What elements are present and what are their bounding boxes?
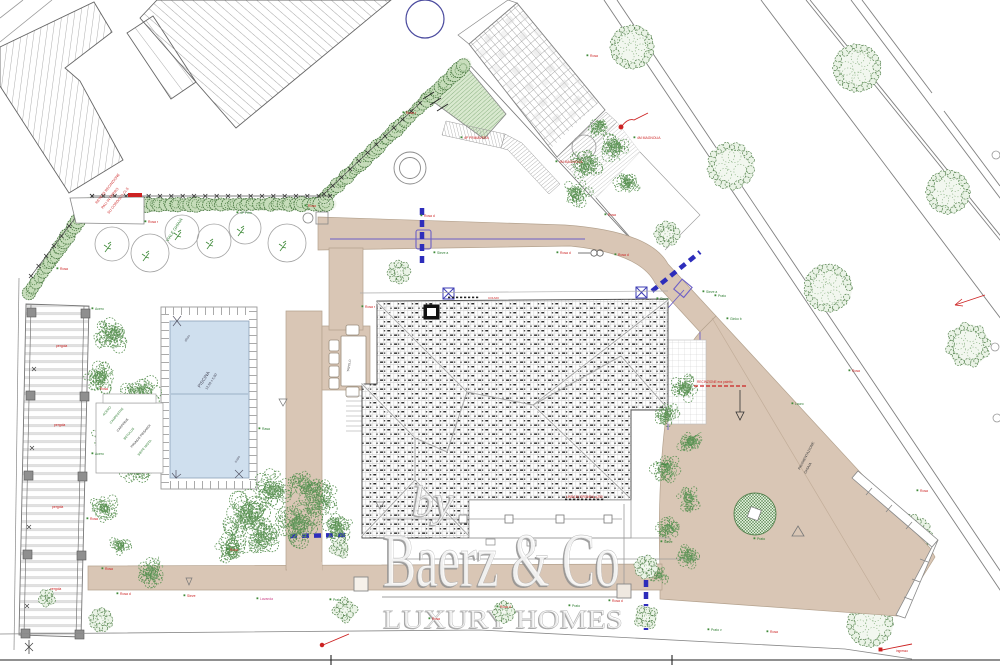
svg-text:Rosa: Rosa [230, 548, 238, 552]
svg-text:Lavanda: Lavanda [260, 597, 273, 601]
svg-text:Rosa r: Rosa r [406, 111, 417, 115]
svg-text:Prato v: Prato v [711, 628, 722, 632]
svg-text:Rosa: Rosa [590, 54, 598, 58]
svg-text:Rosa d: Rosa d [612, 599, 623, 603]
svg-text:Rosa: Rosa [308, 204, 316, 208]
svg-text:Sieve: Sieve [660, 462, 669, 466]
svg-text:4M MAGNOLIA: 4M MAGNOLIA [637, 136, 661, 140]
svg-text:pergola: pergola [50, 587, 61, 591]
svg-text:Rosa: Rosa [920, 489, 928, 493]
svg-text:Acero: Acero [95, 307, 104, 311]
svg-text:RECINZIONE era paletto: RECINZIONE era paletto [697, 380, 733, 384]
svg-text:Baerz & Co: Baerz & Co [383, 519, 620, 603]
svg-text:Rosa: Rosa [105, 567, 113, 571]
svg-text:Rosa r: Rosa r [365, 305, 376, 309]
svg-text:Rosa d: Rosa d [500, 605, 511, 609]
svg-text:Rosa: Rosa [852, 369, 860, 373]
svg-text:Rosa: Rosa [90, 517, 98, 521]
svg-text:pergola: pergola [54, 423, 65, 427]
svg-text:Prato: Prato [333, 598, 341, 602]
svg-text:pergola: pergola [56, 344, 67, 348]
svg-text:Rasa: Rasa [262, 427, 270, 431]
svg-text:Prato: Prato [718, 294, 726, 298]
svg-text:Rosa: Rosa [100, 387, 108, 391]
svg-text:Prato: Prato [572, 604, 580, 608]
svg-text:Rosa d: Rosa d [424, 214, 435, 218]
svg-text:4M MAGNOLIA: 4M MAGNOLIA [559, 160, 583, 164]
svg-text:Ginko b: Ginko b [730, 317, 742, 321]
svg-text:Acero: Acero [95, 452, 104, 456]
svg-text:Rosa d: Rosa d [120, 592, 131, 596]
svg-text:Sieve a: Sieve a [437, 251, 448, 255]
svg-text:Rosa r: Rosa r [148, 220, 159, 224]
svg-text:pergola: pergola [52, 505, 63, 509]
svg-text:Rosa: Rosa [432, 617, 440, 621]
svg-text:COLMO: COLMO [488, 296, 500, 300]
svg-text:Rosa d: Rosa d [560, 251, 571, 255]
svg-text:Sieve a: Sieve a [706, 290, 717, 294]
svg-text:Prato: Prato [757, 537, 765, 541]
svg-text:Sieve: Sieve [660, 297, 669, 301]
svg-text:Lauro: Lauro [795, 402, 804, 406]
svg-text:4P Prim: 4P Prim [240, 211, 252, 215]
svg-text:LINEA DI GRONDA q.250: LINEA DI GRONDA q.250 [566, 495, 603, 499]
svg-text:Rosa: Rosa [770, 630, 778, 634]
svg-text:Sieve: Sieve [664, 540, 673, 544]
svg-text:Sieve: Sieve [187, 594, 196, 598]
svg-text:Rosa: Rosa [60, 267, 68, 271]
svg-text:4P PRIMAVERA: 4P PRIMAVERA [464, 136, 489, 140]
svg-text:Rosa: Rosa [608, 213, 616, 217]
svg-text:ingresso: ingresso [896, 649, 908, 653]
svg-text:Rosa d: Rosa d [618, 253, 629, 257]
